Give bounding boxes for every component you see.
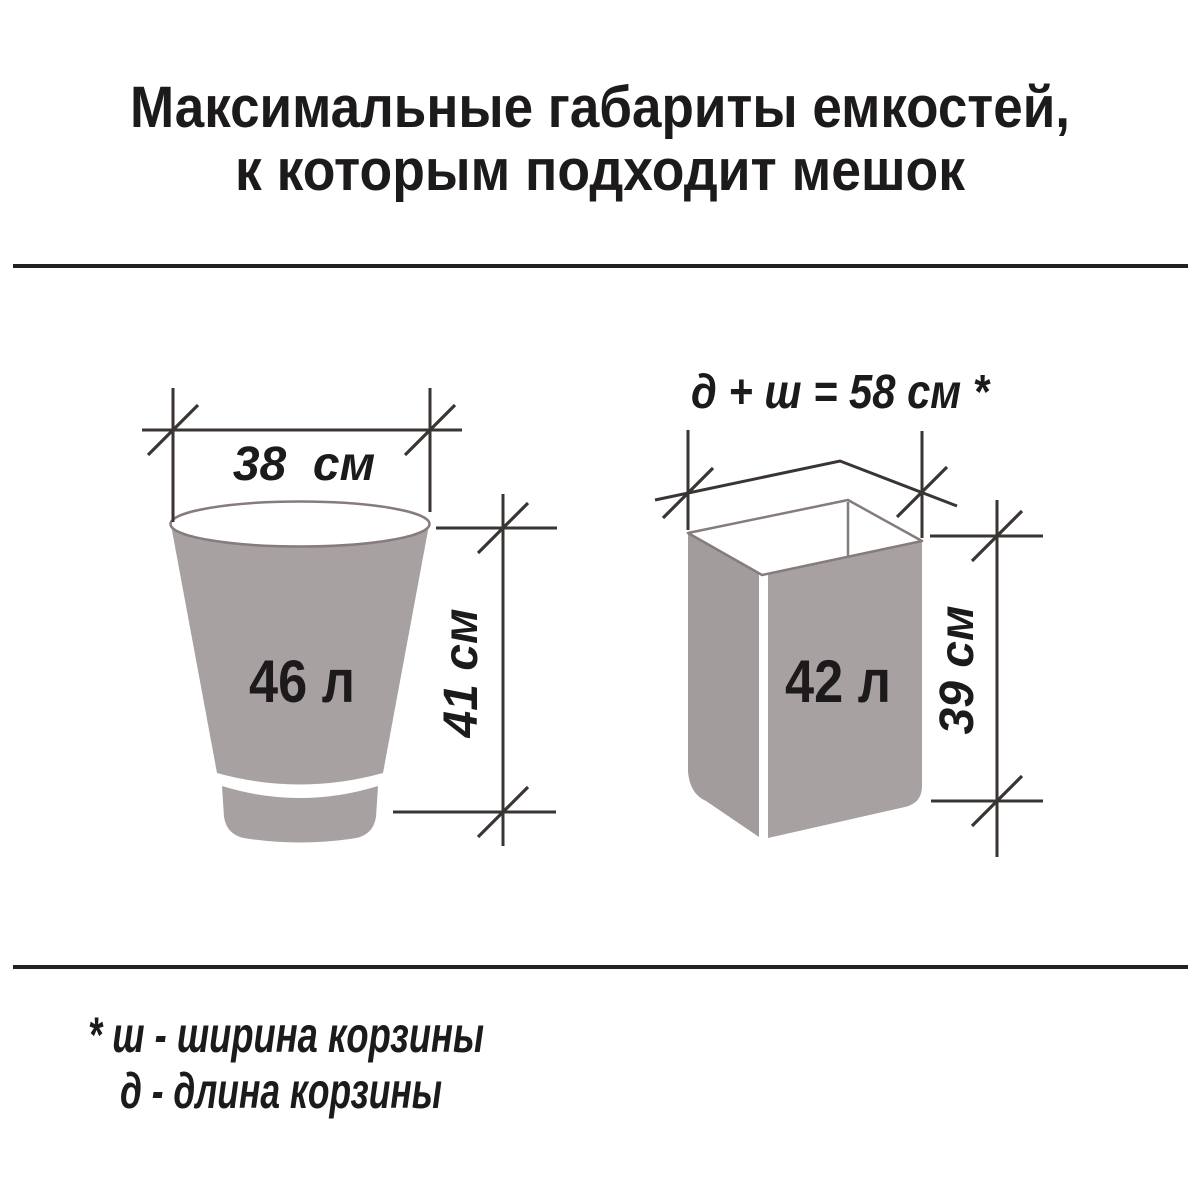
bucket-volume-label: 46 л	[249, 648, 355, 715]
bucket-base	[222, 786, 378, 843]
bucket-rim-ellipse	[171, 502, 430, 547]
box-perimeter-label: д + ш = 58 см *	[691, 366, 991, 419]
footnote-line2: д - длина корзины	[120, 1063, 442, 1119]
bucket-figure: 38 см 41 см 46 л	[142, 388, 557, 846]
page-title-line1: Максимальные габариты емкостей,	[130, 75, 1070, 140]
page-title-line2: к которым подходит мешок	[235, 138, 966, 203]
box-volume-label: 42 л	[785, 648, 891, 715]
box-figure: д + ш = 58 см * 39 см 42 л	[655, 366, 1043, 857]
infographic-page: Максимальные габариты емкостей, к которы…	[0, 0, 1200, 1200]
bucket-height-label: 41 см	[435, 609, 488, 739]
diagram-canvas: Максимальные габариты емкостей, к которы…	[0, 0, 1200, 1200]
box-left-wall	[688, 533, 759, 837]
bucket-width-label: 38 см	[233, 438, 375, 491]
box-height-label: 39 см	[931, 606, 984, 735]
box-perimeter-dimension-line	[655, 461, 957, 506]
footnote-line1: * ш - ширина корзины	[88, 1007, 484, 1063]
